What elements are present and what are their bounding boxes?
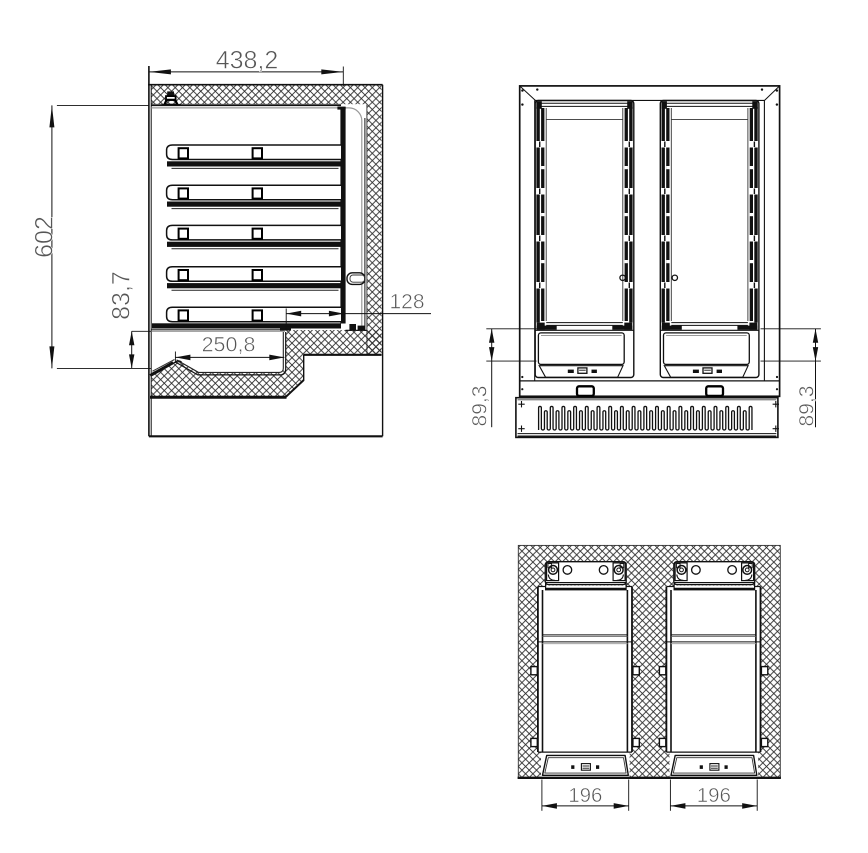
svg-text:89,3: 89,3: [468, 386, 491, 427]
svg-text:602: 602: [30, 216, 58, 258]
svg-text:83,7: 83,7: [107, 271, 135, 320]
svg-text:438,2: 438,2: [216, 46, 279, 74]
svg-text:196: 196: [568, 784, 602, 807]
svg-text:89,3: 89,3: [795, 386, 818, 427]
svg-text:196: 196: [697, 784, 731, 807]
svg-text:128: 128: [389, 291, 424, 314]
svg-text:250,8: 250,8: [202, 333, 256, 357]
